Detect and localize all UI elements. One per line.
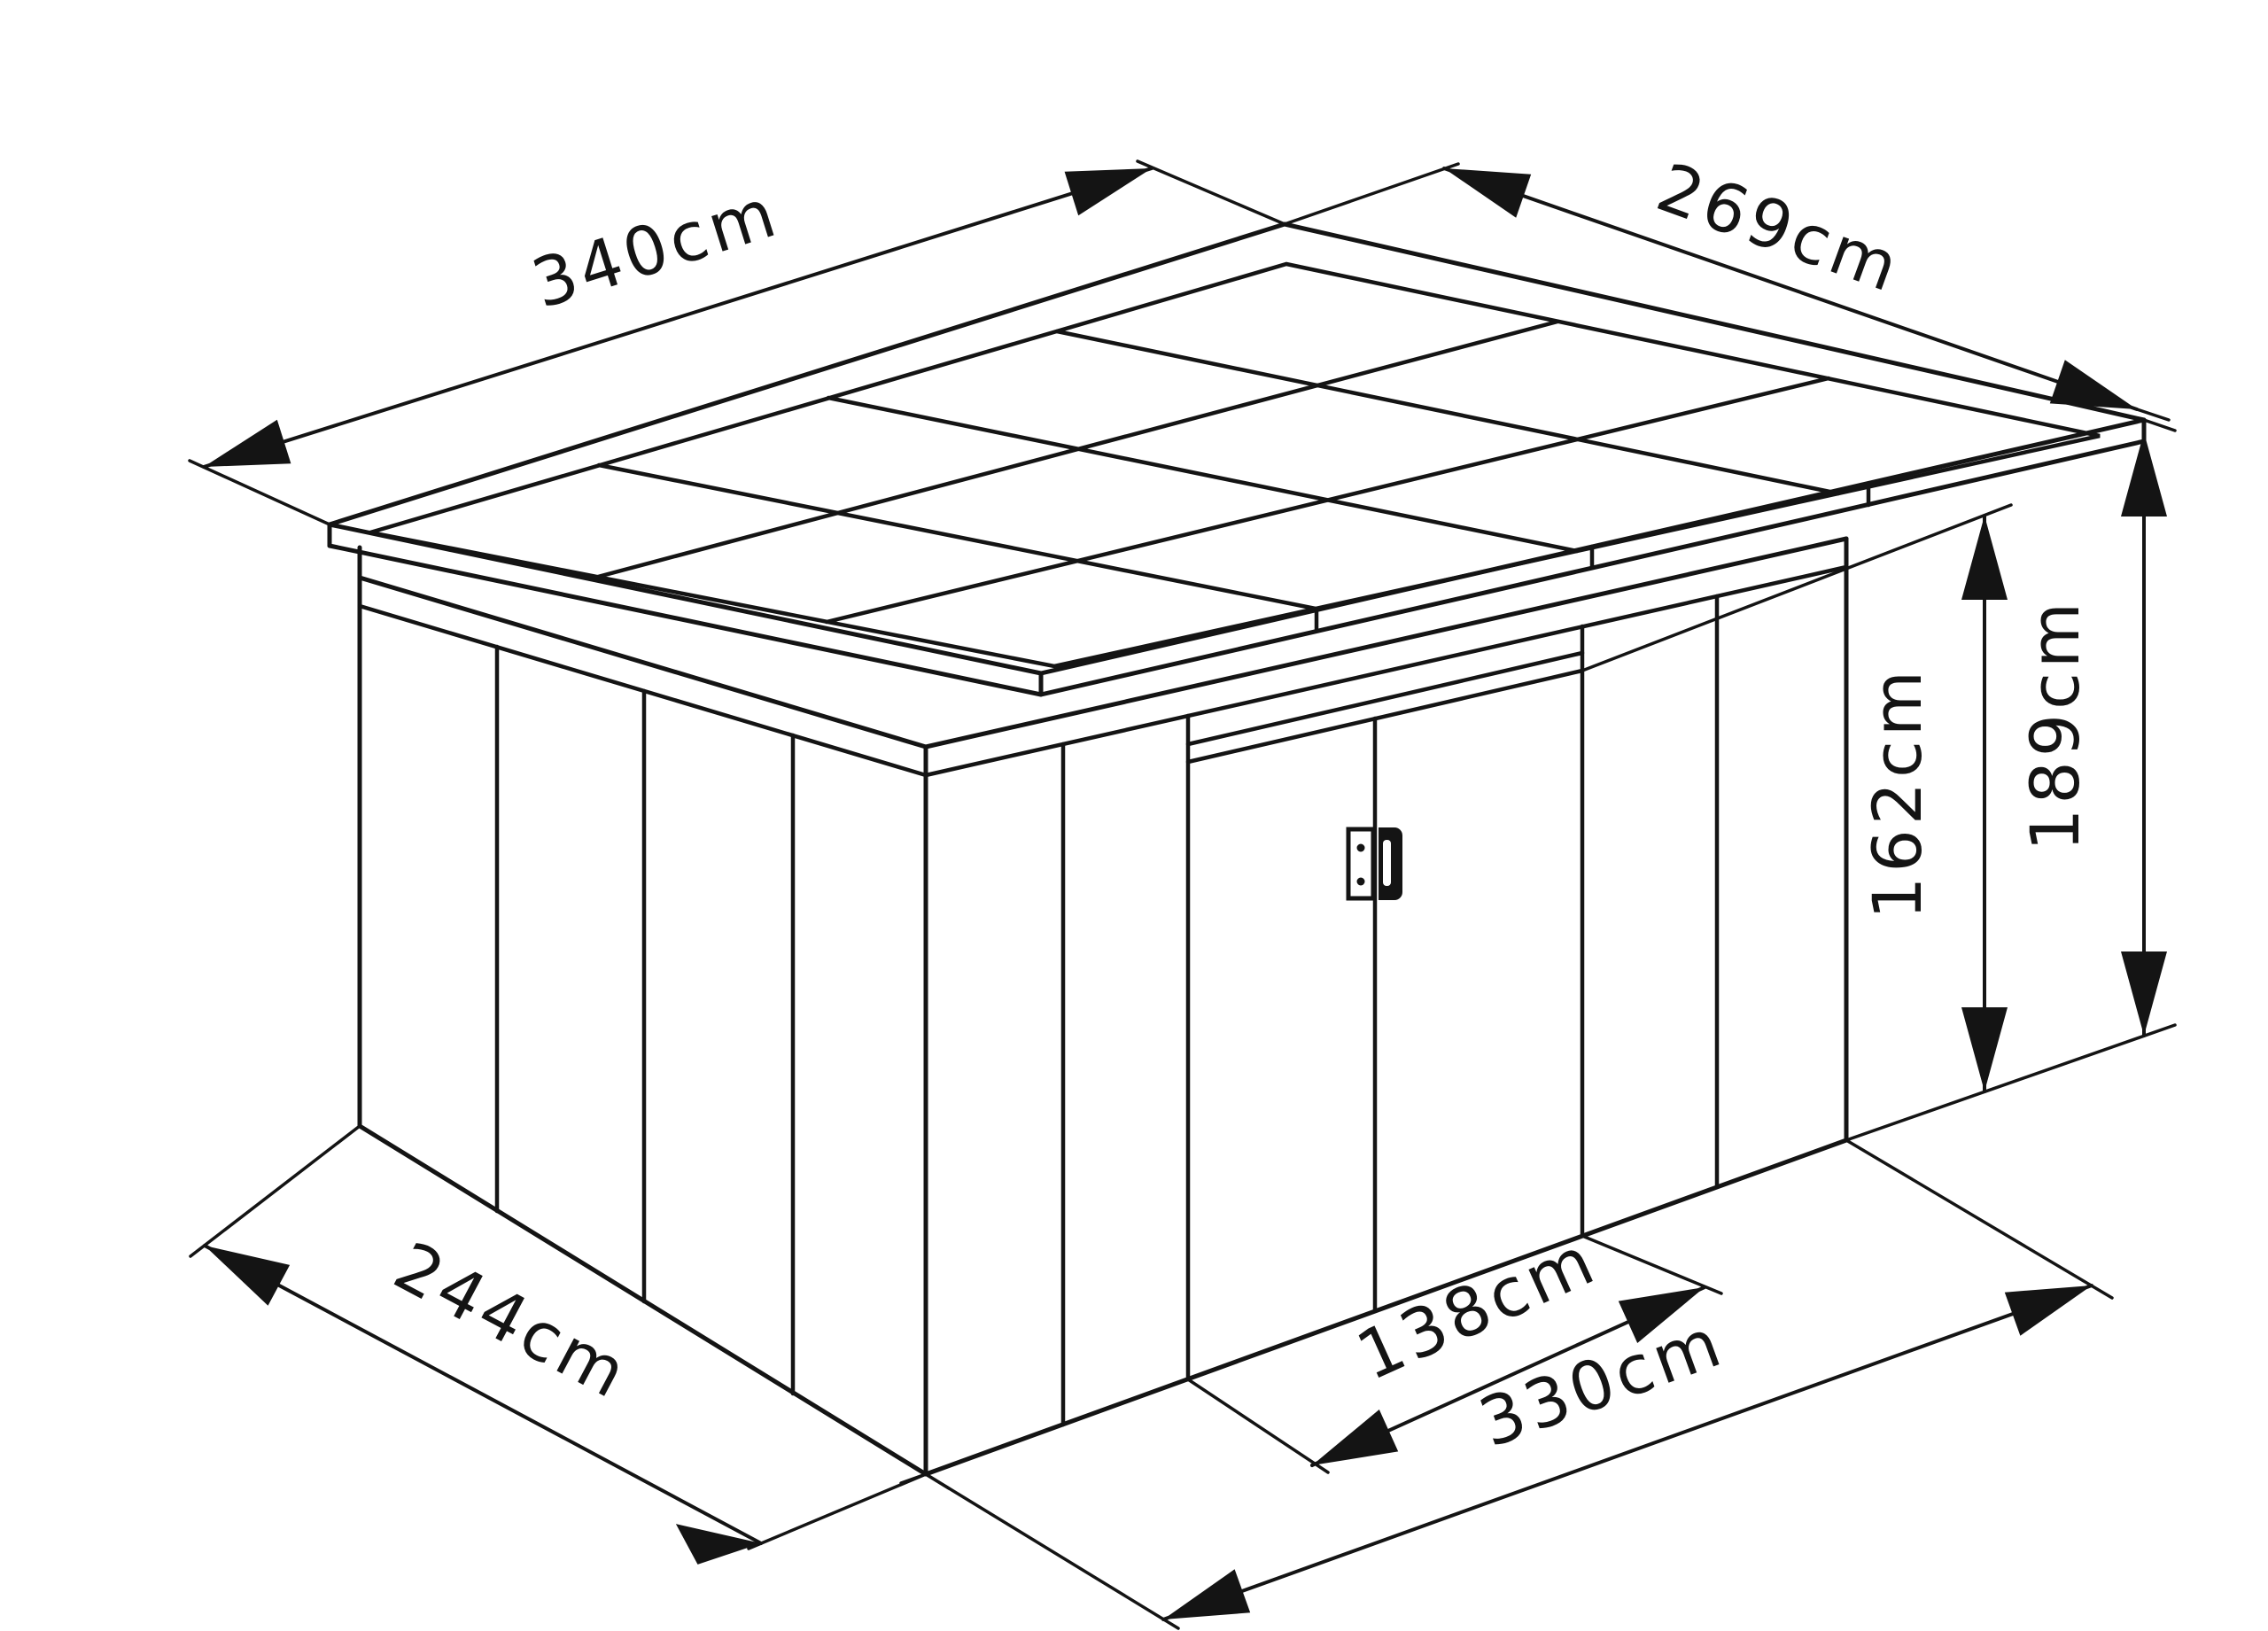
arrowhead [1961, 516, 2008, 600]
dimension-base-length: 330cm [926, 1140, 2112, 1628]
diagram-canvas: 340cm 269cm 244cm 330cm 138cm [0, 0, 2268, 1631]
left-wall [360, 548, 926, 1474]
shed-dimension-diagram: 340cm 269cm 244cm 330cm 138cm [0, 0, 2268, 1631]
dimension-label: 162cm [1858, 666, 1937, 920]
dimension-roof-depth: 269cm [1285, 147, 2169, 420]
extension-line [2144, 420, 2175, 431]
dimension-door-height: 162cm [1582, 505, 2011, 1091]
arrowhead [1065, 168, 1152, 215]
dimension-label: 189cm [2016, 598, 2094, 851]
extension-line [1285, 164, 1458, 224]
dimension-base-depth: 244cm [190, 1126, 926, 1565]
arrowhead [1163, 1569, 1250, 1619]
extension-line [1138, 161, 1285, 224]
ground-extension-line [1846, 1025, 2175, 1140]
door-handle-icon [1348, 827, 1402, 900]
arrowhead [204, 420, 291, 467]
extension-line [1846, 1140, 2112, 1298]
roof-seam-row [827, 378, 1829, 622]
arrowhead [205, 1246, 290, 1306]
dimension-label: 340cm [523, 172, 788, 323]
arrowhead [1444, 168, 1531, 218]
handle-screw [1357, 844, 1365, 852]
arrowhead [676, 1524, 761, 1565]
arrowhead [2005, 1285, 2092, 1336]
door-top-edge [1188, 671, 1582, 762]
roof-trim [370, 264, 2100, 666]
handle-screw [1357, 878, 1365, 886]
dimension-label: 244cm [382, 1226, 642, 1415]
handle-pull-slot [1383, 840, 1391, 886]
arrowhead [1961, 1007, 2008, 1091]
extension-line [190, 461, 330, 524]
roof-seam-row [598, 322, 1557, 577]
handle-back-plate [1348, 829, 1373, 898]
extension-line [926, 1474, 1178, 1628]
door-track-line [1188, 653, 1582, 744]
roof-seam-column [828, 398, 1577, 551]
extension-line [749, 1474, 926, 1549]
arrowhead [2050, 360, 2137, 409]
extension-line [190, 1126, 360, 1256]
roof-fascia-bottom-edge [330, 441, 2144, 695]
arrowhead [1312, 1410, 1398, 1465]
extension-line [1582, 505, 2011, 671]
roof-seam-column [599, 465, 1316, 609]
extension-line [1188, 1379, 1328, 1472]
arrowhead [2121, 951, 2167, 1036]
